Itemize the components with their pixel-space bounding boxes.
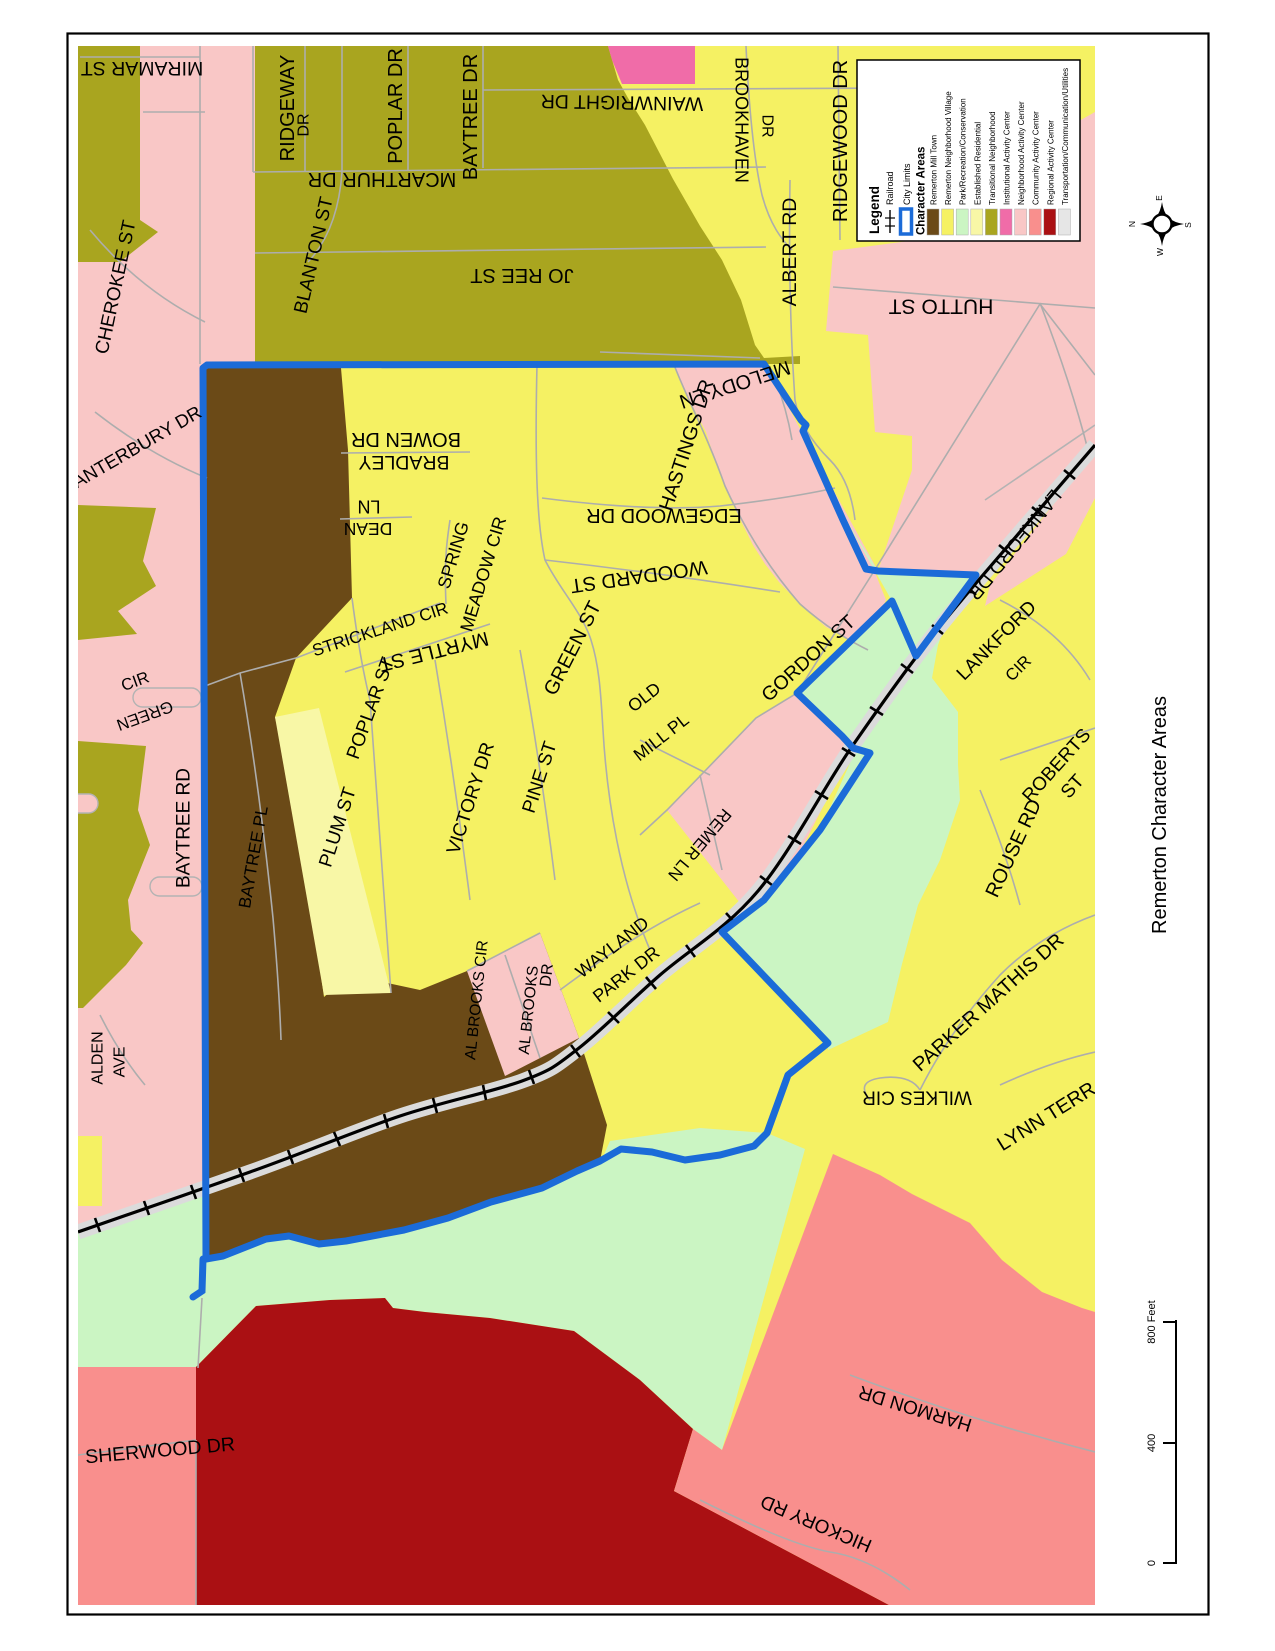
svg-text:S: S <box>1183 222 1193 228</box>
svg-text:Regional Activity Center: Regional Activity Center <box>1046 120 1055 205</box>
svg-text:Institutional Activity Center: Institutional Activity Center <box>1003 111 1012 205</box>
svg-text:MCARTHUR DR: MCARTHUR DR <box>308 168 457 190</box>
svg-text:Park/Recreation/Conservation: Park/Recreation/Conservation <box>959 98 968 205</box>
svg-text:BROOKHAVEN: BROOKHAVEN <box>732 57 752 183</box>
svg-text:DR: DR <box>758 114 775 137</box>
svg-text:Community Activity Center: Community Activity Center <box>1032 111 1041 205</box>
svg-text:BAYTREE RD: BAYTREE RD <box>174 768 195 888</box>
svg-text:DEAN: DEAN <box>344 519 393 539</box>
svg-text:BOWEN DR: BOWEN DR <box>351 428 461 450</box>
svg-text:Character Areas: Character Areas <box>916 147 928 235</box>
svg-text:Remerton Neighborhood Village: Remerton Neighborhood Village <box>944 91 953 205</box>
svg-text:City Limits: City Limits <box>902 163 912 205</box>
svg-text:W: W <box>1155 248 1165 256</box>
svg-text:RIDGEWOOD DR: RIDGEWOOD DR <box>830 60 852 222</box>
svg-text:MIRAMAR ST: MIRAMAR ST <box>81 57 204 79</box>
svg-text:BRADLEY: BRADLEY <box>358 451 449 473</box>
svg-text:AVE: AVE <box>112 1047 129 1078</box>
svg-text:800 Feet: 800 Feet <box>1146 1300 1158 1343</box>
svg-text:DR: DR <box>296 113 313 136</box>
svg-text:400: 400 <box>1146 1434 1158 1452</box>
svg-text:0: 0 <box>1146 1560 1158 1566</box>
svg-text:EDGEWOOD DR: EDGEWOOD DR <box>586 504 742 526</box>
svg-text:WAINWRIGHT DR: WAINWRIGHT DR <box>541 90 704 115</box>
svg-text:ALDEN: ALDEN <box>90 1031 107 1084</box>
svg-text:Established Residential: Established Residential <box>973 122 982 205</box>
svg-text:Legend: Legend <box>867 186 882 234</box>
svg-text:POPLAR DR: POPLAR DR <box>385 48 407 164</box>
svg-text:Transportation/Communication/U: Transportation/Communication/Utilities <box>1061 68 1070 205</box>
svg-text:BAYTREE DR: BAYTREE DR <box>460 54 482 180</box>
svg-text:N: N <box>1127 221 1137 227</box>
svg-text:LN: LN <box>357 497 380 517</box>
svg-text:Transitional Neighborhood: Transitional Neighborhood <box>988 111 997 205</box>
svg-text:Railroad: Railroad <box>885 171 895 205</box>
svg-text:HUTTO ST: HUTTO ST <box>889 295 994 318</box>
svg-text:Neighborhood Activity Center: Neighborhood Activity Center <box>1017 101 1026 205</box>
svg-text:Remerton Character Areas: Remerton Character Areas <box>1149 696 1171 934</box>
svg-text:Remerton Mill Town: Remerton Mill Town <box>930 135 939 205</box>
svg-text:ALBERT RD: ALBERT RD <box>779 198 801 307</box>
svg-text:WILKES CIR: WILKES CIR <box>862 1086 972 1107</box>
svg-text:E: E <box>1154 195 1164 201</box>
svg-text:JO REE ST: JO REE ST <box>470 264 573 286</box>
svg-text:RIDGEWAY: RIDGEWAY <box>277 55 299 162</box>
svg-text:DR: DR <box>537 963 556 988</box>
